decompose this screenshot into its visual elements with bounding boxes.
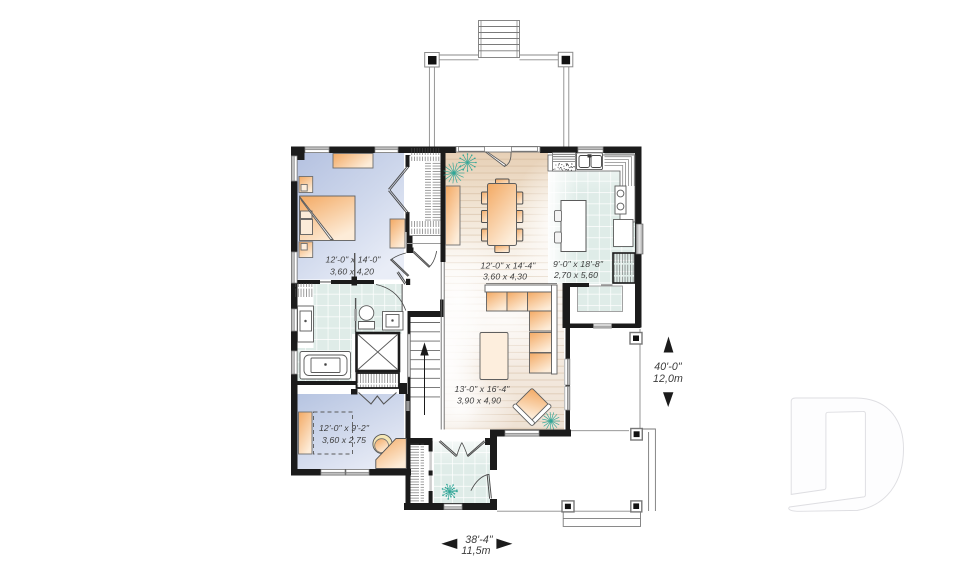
svg-text:3,60 x 4,30: 3,60 x 4,30 bbox=[483, 272, 527, 282]
svg-text:3,60 x 2,75: 3,60 x 2,75 bbox=[322, 435, 366, 445]
svg-text:40'-0": 40'-0" bbox=[654, 361, 683, 373]
svg-text:12,0m: 12,0m bbox=[653, 373, 683, 385]
svg-text:9'-0" x 18'-8": 9'-0" x 18'-8" bbox=[553, 259, 604, 269]
svg-text:3,60 x 4,20: 3,60 x 4,20 bbox=[330, 267, 374, 277]
svg-text:3,90 x 4,90: 3,90 x 4,90 bbox=[457, 396, 501, 406]
svg-text:11,5m: 11,5m bbox=[461, 545, 490, 557]
svg-text:12'-0" x 14'-0": 12'-0" x 14'-0" bbox=[326, 255, 382, 265]
svg-text:2,70 x 5,60: 2,70 x 5,60 bbox=[553, 270, 598, 280]
svg-text:12'-0" x 14'-4": 12'-0" x 14'-4" bbox=[481, 261, 537, 271]
svg-text:13'-0" x 16'-4": 13'-0" x 16'-4" bbox=[455, 384, 511, 394]
svg-text:12'-0" x 9'-2": 12'-0" x 9'-2" bbox=[319, 423, 370, 433]
